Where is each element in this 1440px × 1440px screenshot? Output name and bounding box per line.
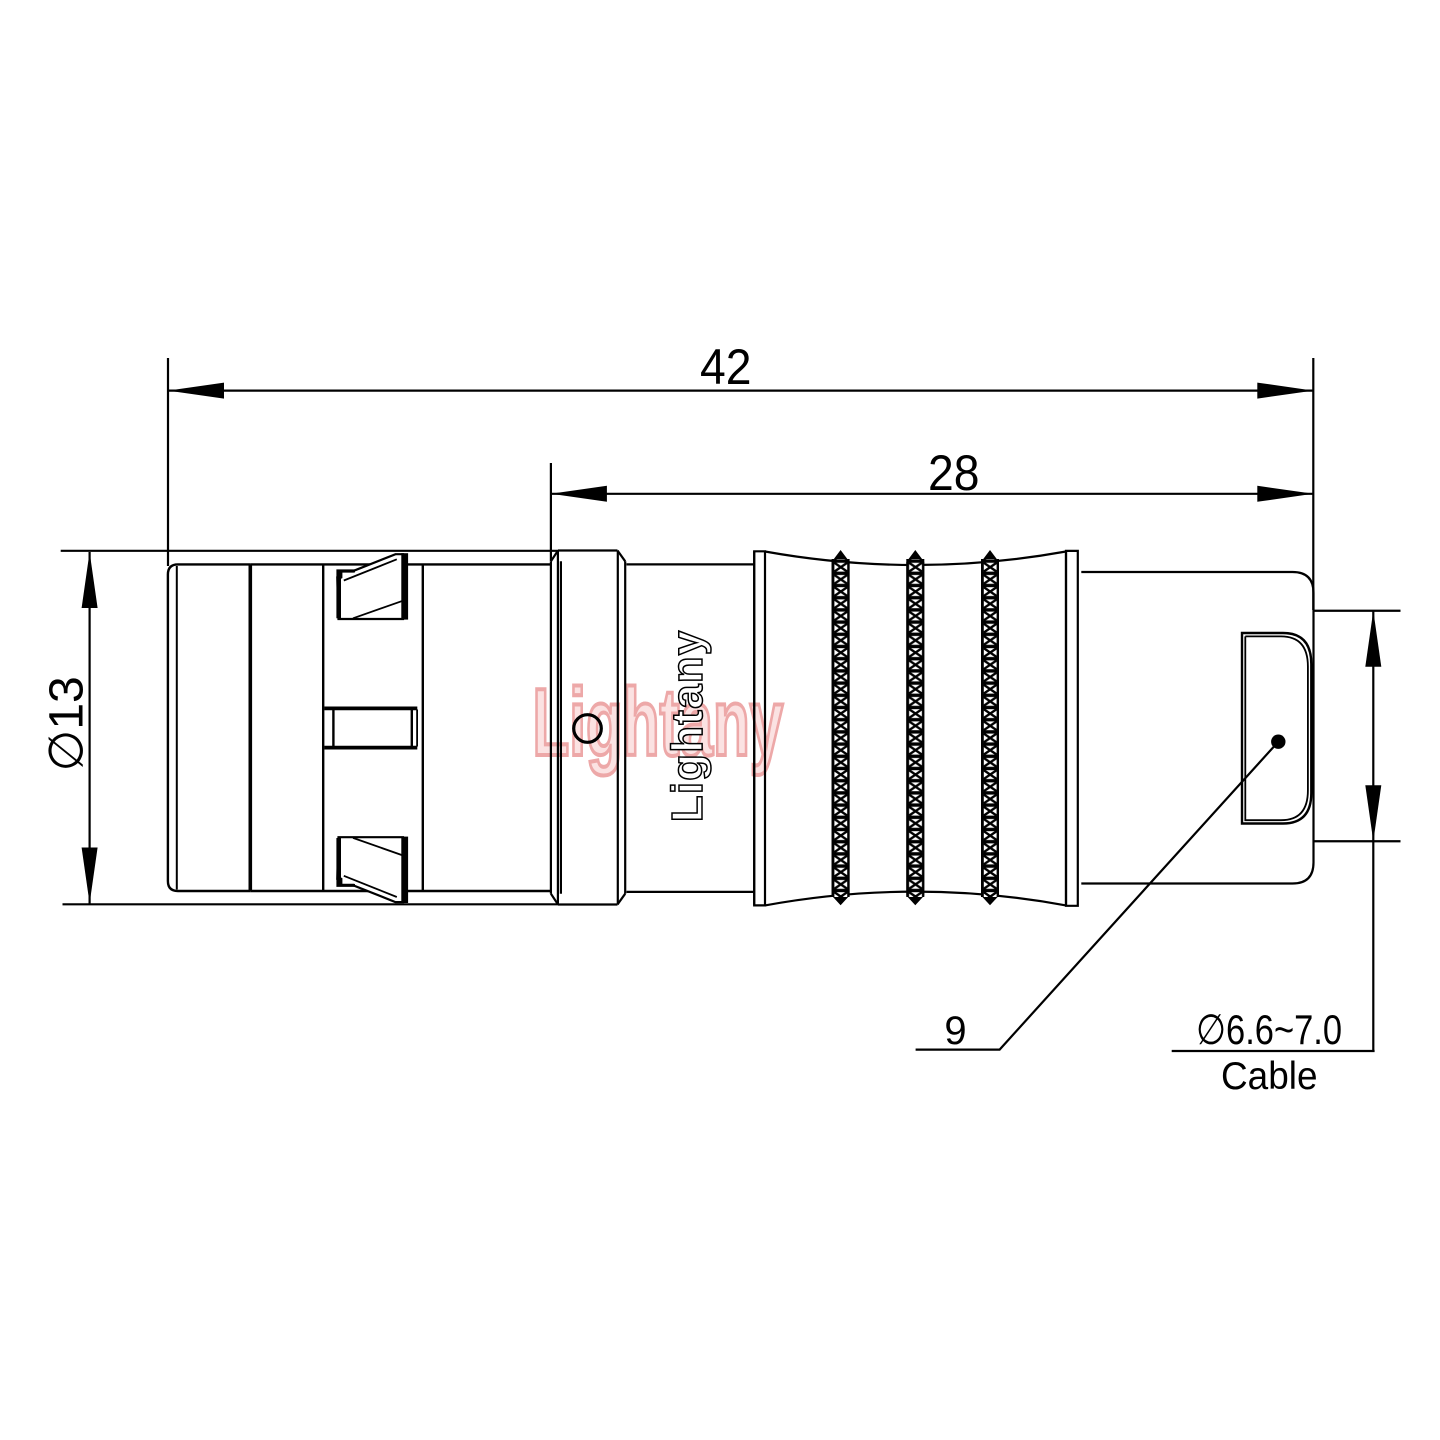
svg-text:Lightany: Lightany — [663, 630, 712, 822]
svg-text:28: 28 — [928, 445, 980, 501]
svg-text:42: 42 — [700, 339, 752, 395]
svg-text:Lightany: Lightany — [533, 668, 784, 776]
svg-text:∅13: ∅13 — [41, 676, 94, 771]
svg-text:∅6.6~7.0: ∅6.6~7.0 — [1196, 1006, 1342, 1053]
svg-text:Cable: Cable — [1221, 1055, 1318, 1098]
svg-text:9: 9 — [944, 1009, 966, 1053]
